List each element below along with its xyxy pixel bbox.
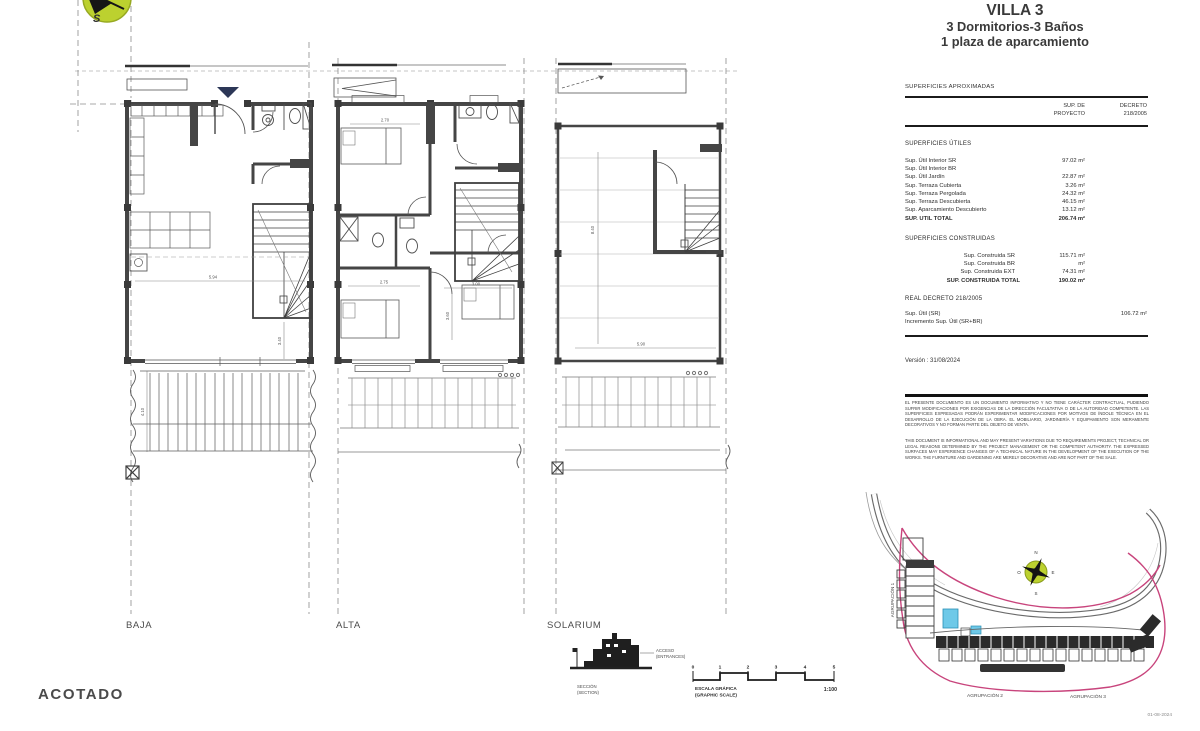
dim-baja-width: 5.94 (209, 275, 218, 280)
dim-baja-terrace: 4.10 (140, 407, 145, 416)
row-label: SUP. CONSTRUIDA TOTAL (905, 278, 1020, 284)
row-label: Sup. Útil Interior SR (905, 158, 956, 164)
row-value: 97.02 m² (1062, 158, 1085, 164)
table-row: Sup. Construida BRm² (905, 261, 1148, 269)
col-decreto-line1: DECRETO (1092, 103, 1147, 111)
scale-ratio: 1:100 (824, 687, 837, 693)
access-label-en: (ENTRANCES) (656, 654, 686, 659)
row-label: Sup. Terraza Cubierta (905, 183, 961, 189)
scale-tick-2: 2 (747, 665, 750, 671)
row-value: 24.32 m² (1062, 191, 1085, 197)
construidas-section-title: SUPERFICIES CONSTRUIDAS (905, 236, 995, 242)
table-row: Sup. Útil Interior SR97.02 m² (905, 158, 1148, 166)
table-row: Sup. Útil (SR)106.72 m² (905, 311, 1148, 319)
north-compass-icon: S (78, 0, 131, 132)
row-value: 13.12 m² (1062, 207, 1085, 213)
table-row: Incremento Sup. Útil (SR+BR) (905, 319, 1148, 327)
row-value: 22.87 m² (1062, 174, 1085, 180)
plan-sheet: S (0, 0, 1200, 731)
site-compass-n: N (1034, 550, 1037, 555)
row-label: Sup. Construida BR (905, 261, 1015, 267)
drawing-type-title: ACOTADO (38, 686, 124, 703)
row-value: 46.15 m² (1062, 199, 1085, 205)
row-value: m² (1078, 261, 1085, 267)
highlighted-unit (943, 609, 958, 628)
rule (905, 335, 1148, 337)
row-value: 106.72 m² (1121, 311, 1147, 317)
rule (905, 125, 1148, 127)
site-compass-e: E (1051, 570, 1054, 575)
row-label: Sup. Construida SR (905, 253, 1015, 259)
rule (905, 96, 1148, 98)
section-label-es: SECCIÓN (577, 684, 597, 689)
grid-dashed-lines (70, 42, 740, 614)
site-compass-icon: N S E O (1017, 550, 1054, 596)
section-drawing: SECCIÓN (SECTION) ACCESO (ENTRANCES) (570, 633, 686, 695)
row-value: 115.71 m² (1059, 253, 1085, 259)
scale-tick-1: 1 (719, 665, 722, 671)
row-label: Sup. Útil Jardín (905, 174, 945, 180)
dim-baja-depth: 3.40 (277, 336, 282, 345)
scale-label-en: (GRAPHIC SCALE) (695, 693, 737, 698)
row-label: SUP. UTIL TOTAL (905, 216, 953, 222)
access-label-es: ACCESO (656, 648, 675, 653)
dim-solarium-1: 8.40 (590, 225, 595, 234)
dim-alta-3: 3.00 (472, 282, 481, 287)
section-label-en: (SECTION) (577, 690, 600, 695)
construidas-total-row: SUP. CONSTRUIDA TOTAL190.02 m² (905, 278, 1148, 286)
site-compass-s: S (1034, 591, 1037, 596)
table-row: Sup. Útil Jardín22.87 m² (905, 174, 1148, 182)
row-label: Sup. Construida EXT (905, 269, 1015, 275)
col-project-line2: PROYECTO (1015, 111, 1085, 119)
site-plan: N S E O AGRUPACIÓN 1 AGRUPACIÓN 2 AGRUPA… (866, 492, 1172, 718)
column-header-project: SUP. DE PROYECTO (1015, 103, 1085, 118)
disclaimer-en: THIS DOCUMENT IS INFORMATIONAL AND MAY P… (905, 438, 1149, 460)
utiles-total-row: SUP. UTIL TOTAL206.74 m² (905, 216, 1148, 224)
table-row: Sup. Terraza Cubierta3.26 m² (905, 183, 1148, 191)
floor-plan-alta: 2.70 2.75 3.00 3.60 (332, 65, 525, 468)
agrupacion-2-label: AGRUPACIÓN 2 (967, 692, 1003, 699)
graphic-scale-bar: 0 1 2 3 4 5 ESCALA GRÁFICA (GRAPHIC SCAL… (692, 665, 837, 698)
row-label: Sup. Útil Interior BR (905, 166, 956, 172)
utiles-section-title: SUPERFICIES ÚTILES (905, 141, 971, 147)
table-caption: SUPERFICIES APROXIMADAS (905, 84, 995, 90)
table-row: Sup. Aparcamiento Descubierto13.12 m² (905, 207, 1148, 215)
floor-plan-baja: 5.94 3.40 4.10 (124, 66, 316, 482)
site-compass-o: O (1017, 570, 1021, 575)
column-header-decreto: DECRETO 218/2005 (1092, 103, 1147, 118)
row-value: 206.74 m² (1059, 216, 1085, 222)
row-value: 3.26 m² (1065, 183, 1085, 189)
col-decreto-line2: 218/2005 (1092, 111, 1147, 119)
plan-label-solarium: SOLARIUM (547, 620, 601, 631)
floor-plan-solarium: 8.40 5.90 (552, 64, 730, 474)
row-label: Sup. Terraza Pergolada (905, 191, 966, 197)
table-row: Sup. Terraza Pergolada24.32 m² (905, 191, 1148, 199)
col-project-line1: SUP. DE (1015, 103, 1085, 111)
row-label: Incremento Sup. Útil (SR+BR) (905, 319, 982, 325)
plan-label-alta: ALTA (336, 620, 361, 631)
agrupacion-1-label: AGRUPACIÓN 1 (889, 582, 895, 617)
decreto-section-title: REAL DECRETO 218/2005 (905, 296, 982, 302)
row-label: Sup. Útil (SR) (905, 311, 940, 317)
table-row: Sup. Construida SR115.71 m² (905, 253, 1148, 261)
row-value: 190.02 m² (1059, 278, 1085, 284)
row-label: Sup. Aparcamiento Descubierto (905, 207, 987, 213)
row-label: Sup. Terraza Descubierta (905, 199, 970, 205)
scale-label-es: ESCALA GRÁFICA (695, 685, 737, 691)
version-label: Versión : 31/08/2024 (905, 358, 960, 364)
dim-solarium-2: 5.90 (637, 342, 646, 347)
scale-tick-4: 4 (804, 665, 807, 671)
dim-alta-4: 3.60 (445, 311, 450, 320)
scale-tick-5: 5 (833, 665, 836, 671)
scale-tick-3: 3 (775, 665, 778, 671)
entrance-marker-icon (217, 87, 239, 98)
scale-tick-0: 0 (692, 665, 695, 671)
row-value: 74.31 m² (1062, 269, 1085, 275)
heavy-rule (905, 394, 1148, 397)
dim-alta-2: 2.75 (380, 280, 389, 285)
agrupacion-3-label: AGRUPACIÓN 3 (1070, 693, 1106, 700)
plan-label-baja: BAJA (126, 620, 152, 631)
dim-alta-1: 2.70 (381, 118, 390, 123)
disclaimer-es: EL PRESENTE DOCUMENTO ES UN DOCUMENTO IN… (905, 400, 1149, 428)
table-row: Sup. Construida EXT74.31 m² (905, 269, 1148, 277)
site-plan-date: 01-08-2024 (1147, 712, 1172, 718)
compass-s-label: S (93, 13, 101, 25)
table-row: Sup. Terraza Descubierta46.15 m² (905, 199, 1148, 207)
